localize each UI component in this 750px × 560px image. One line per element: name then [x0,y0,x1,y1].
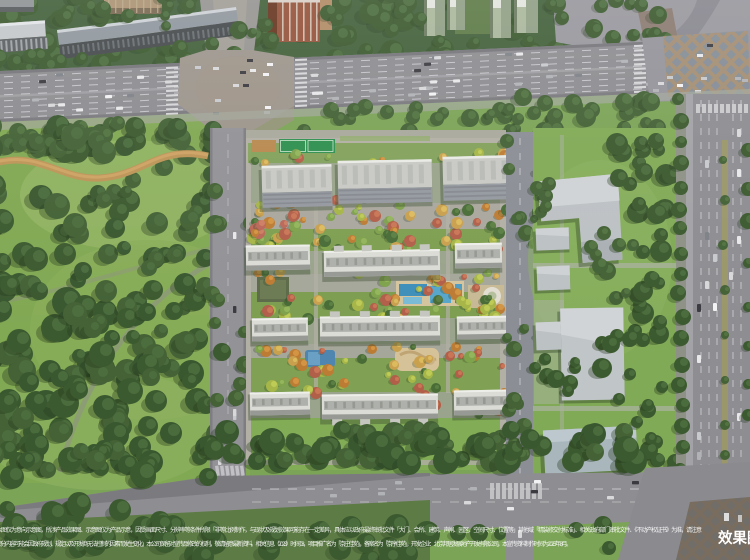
svg-text:效果图: 效果图 [718,529,750,547]
svg-text:本图仅为意向示意图，所涉产品效果图、示意图仅为产品示意，因受: 本图仅为意向示意图，所涉产品效果图、示意图仅为产品示意，因受画面尺寸、分辨率等条… [0,526,702,534]
svg-text:部分内容可能会因政府规划、规定以及开发商无法控制的因素而发生: 部分内容可能会因政府规划、规定以及开发商无法控制的因素而发生变化」本公司保留对宣… [0,540,572,548]
